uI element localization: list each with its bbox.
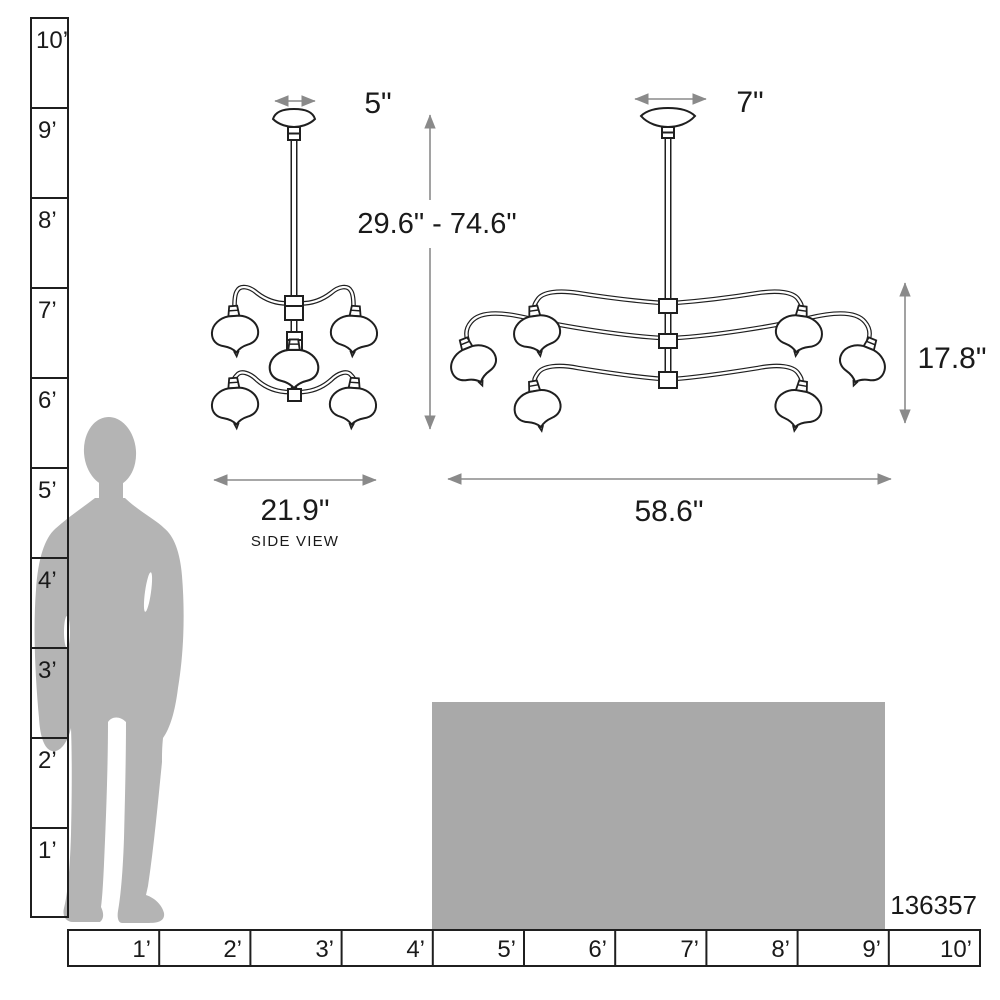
canopy-front-view (641, 108, 695, 127)
dimension-annotations: 5" 7" 29.6" - 74.6" 17.8" 21.9" SIDE VIE… (214, 86, 987, 550)
glass-shade (329, 304, 379, 358)
hruler-tick-6ft: 6’ (588, 936, 607, 963)
hruler-tick-5ft: 5’ (497, 936, 516, 963)
canopy-side-view (273, 109, 315, 127)
hruler-tick-10ft: 10’ (940, 936, 972, 963)
hruler-tick-7ft: 7’ (680, 936, 699, 963)
side-view-caption: SIDE VIEW (251, 533, 339, 550)
front-width-label: 58.6" (634, 495, 703, 528)
chandelier-front-view (442, 108, 894, 435)
hruler-tick-1ft: 1’ (132, 936, 151, 963)
vruler-tick-9ft: 9’ (38, 117, 57, 144)
glass-shade (832, 330, 894, 394)
height-range-label: 29.6" - 74.6" (357, 208, 516, 240)
fixture-height-label: 17.8" (917, 342, 986, 375)
glass-shade (772, 377, 826, 435)
glass-shade (510, 377, 564, 435)
silhouette-body (35, 498, 184, 923)
furniture-scale-block (432, 702, 885, 930)
canopy-width-label-side: 5" (364, 87, 391, 120)
horizontal-ruler: 1’ 2’ 3’ 4’ 5’ 6’ 7’ 8’ 9’ 10’ (68, 930, 980, 966)
glass-shade (328, 376, 378, 430)
dimension-diagram-page: 10’ 9’ 8’ 7’ 6’ 5’ 4’ 3’ 2’ 1’ 1’ 2’ 3’ … (0, 0, 1000, 1000)
hruler-tick-8ft: 8’ (771, 936, 790, 963)
person-silhouette (35, 415, 184, 923)
vruler-tick-8ft: 8’ (38, 207, 57, 234)
vruler-tick-4ft: 4’ (38, 567, 57, 594)
canopy-width-label-front: 7" (736, 86, 763, 119)
glass-shade (210, 304, 260, 358)
vruler-tick-5ft: 5’ (38, 477, 57, 504)
vruler-tick-2ft: 2’ (38, 747, 57, 774)
glass-shade (442, 330, 504, 394)
glass-shade (210, 376, 260, 430)
vertical-ruler: 10’ 9’ 8’ 7’ 6’ 5’ 4’ 3’ 2’ 1’ (31, 18, 68, 917)
vruler-tick-10ft: 10’ (36, 27, 68, 54)
hruler-tick-4ft: 4’ (406, 936, 425, 963)
product-id: 136357 (890, 890, 977, 920)
vruler-tick-7ft: 7’ (38, 297, 57, 324)
vruler-tick-1ft: 1’ (38, 837, 57, 864)
hruler-tick-9ft: 9’ (862, 936, 881, 963)
side-width-label: 21.9" (260, 494, 329, 527)
chandelier-side-view (210, 109, 379, 430)
vruler-tick-3ft: 3’ (38, 657, 57, 684)
vruler-tick-6ft: 6’ (38, 387, 57, 414)
dimension-diagram: 10’ 9’ 8’ 7’ 6’ 5’ 4’ 3’ 2’ 1’ 1’ 2’ 3’ … (0, 0, 1000, 1000)
glass-shade (510, 303, 563, 359)
glass-shade (773, 303, 826, 359)
glass-shade-center (270, 339, 319, 392)
hruler-tick-3ft: 3’ (315, 936, 334, 963)
hruler-tick-2ft: 2’ (223, 936, 242, 963)
